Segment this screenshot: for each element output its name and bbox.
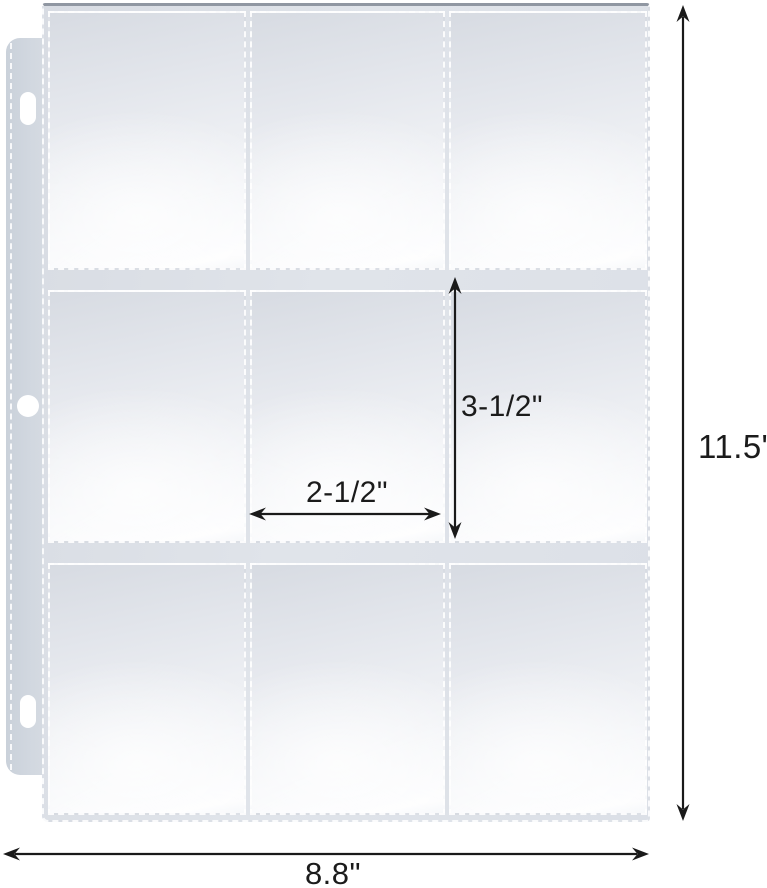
card-pocket-r1c2	[250, 11, 445, 270]
product-image: 11.5" 8.8" 3-1/2" 2-1/2"	[0, 0, 767, 888]
card-pocket-r3c2	[250, 563, 445, 815]
page-width-label: 8.8"	[297, 856, 369, 888]
pocket-width-label: 2-1/2"	[302, 476, 392, 510]
binder-hole-middle-icon	[17, 395, 39, 417]
card-pocket-r1c1	[48, 11, 246, 270]
page-height-label: 11.5"	[698, 428, 767, 466]
card-pocket-r3c3	[449, 563, 647, 815]
card-pocket-r3c1	[48, 563, 246, 815]
binder-hole-top-icon	[20, 92, 36, 125]
card-pocket-r1c3	[449, 11, 647, 270]
card-pocket-r2c1	[48, 290, 246, 543]
stitch-line	[10, 43, 12, 770]
binder-hole-bottom-icon	[20, 695, 36, 728]
pocket-sheet	[42, 3, 650, 822]
page-height-arrow-icon	[671, 4, 695, 822]
pocket-height-label: 3-1/2"	[461, 390, 543, 424]
